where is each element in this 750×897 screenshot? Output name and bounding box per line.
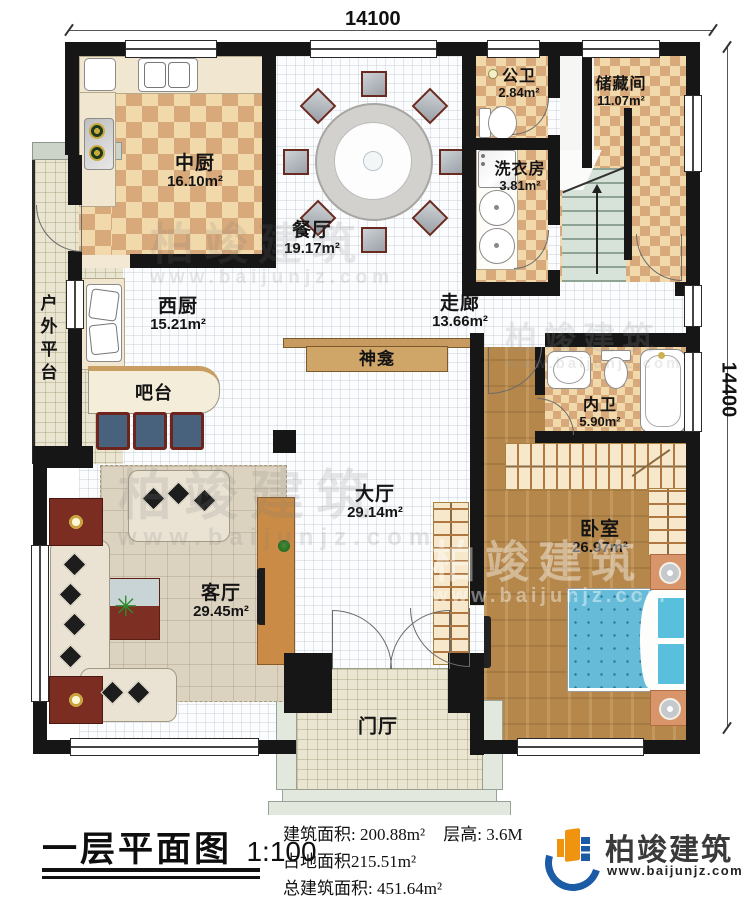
room-name: 餐厅 (284, 220, 340, 241)
porch-step (268, 801, 511, 816)
cabinet-plant (278, 540, 290, 552)
vanity-basin (553, 356, 585, 384)
nightstand (650, 690, 688, 726)
wardrobe-bedroom-top (505, 443, 688, 490)
wall-left-mid2 (68, 251, 82, 280)
room-area: 5.90m² (579, 415, 620, 430)
floor-plan-canvas: 14100 14400 户外平台 吧台 (0, 0, 750, 897)
window (70, 738, 259, 756)
bedroom-tv (484, 616, 491, 668)
room-name: 卧室 (572, 519, 628, 540)
bar-label: 吧台 (135, 383, 173, 403)
bathtub-inner (645, 355, 681, 427)
floor-height: 层高: 3.6M (443, 825, 522, 844)
table-lamp (66, 512, 86, 532)
dining-table-center (363, 151, 383, 171)
window (31, 545, 49, 702)
room-area: 3.81m² (494, 179, 545, 194)
room-area: 29.45m² (193, 604, 249, 621)
room-area: 15.21m² (150, 317, 206, 334)
bar-stool (96, 412, 130, 450)
logo-building-blue (581, 837, 590, 861)
logo-building-orange-small (557, 839, 564, 857)
window (582, 40, 660, 58)
stair-railing-wall (624, 108, 632, 260)
bar-counter: 吧台 (88, 366, 220, 414)
title-block: 一层平面图 1:100 建筑面积: 200.88m² 层高: 3.6M 占地面积… (0, 815, 750, 897)
wall-dining-wc (462, 42, 476, 296)
footprint-area: 占地面积215.51m² (283, 848, 523, 875)
stair-arrow-head (592, 184, 602, 193)
dining-chair (361, 227, 387, 253)
shrine-table: 神龛 (306, 346, 448, 372)
wall-hall-suite (470, 333, 484, 605)
window (684, 352, 702, 432)
wall-hook (488, 69, 498, 79)
window (487, 40, 540, 58)
washer-knob (481, 154, 485, 158)
wall-wc-laundry-divider (476, 138, 548, 150)
fridge (84, 58, 116, 91)
porch-column-left (284, 653, 332, 713)
wall-kitchen-bottom (130, 254, 276, 268)
dining-chair (361, 71, 387, 97)
window (66, 280, 84, 329)
company-logo: 柏竣建筑 www.baijunjz.com (543, 823, 743, 887)
right-dimension-label: 14400 (716, 362, 739, 418)
bar-name: 吧台 (135, 383, 173, 403)
room-area: 19.17m² (284, 241, 340, 258)
plan-title: 一层平面图 1:100 (42, 821, 317, 872)
room-area: 16.10m² (167, 174, 223, 191)
room-label-dining: 餐厅 19.17m² (284, 220, 340, 258)
laundry-sink-drain (494, 205, 499, 210)
wall-left-mid3 (68, 327, 82, 455)
window (125, 40, 217, 58)
room-area: 26.97m² (572, 540, 628, 557)
room-label-hall: 大厅 29.14m² (347, 484, 403, 522)
title-underline (42, 876, 260, 879)
window (310, 40, 437, 58)
logo-icon (543, 823, 599, 883)
logo-building-orange (565, 828, 580, 862)
stair-direction-arrow (596, 192, 598, 274)
sink-basin (168, 62, 190, 88)
room-name: 户外平台 (37, 294, 56, 386)
room-label-foyer: 门厅 (358, 716, 398, 737)
title-underline (42, 868, 260, 872)
room-name: 客厅 (193, 583, 249, 604)
room-area: 29.14m² (347, 505, 403, 522)
sink-basin (88, 288, 120, 322)
room-label-platform: 户外平台 (37, 294, 56, 386)
room-label-corridor: 走廊 13.66m² (432, 293, 488, 331)
table-lamp (66, 690, 86, 710)
window (684, 95, 702, 172)
wall-kitchen-dining (262, 42, 276, 268)
area-stats: 建筑面积: 200.88m² 层高: 3.6M 占地面积215.51m² 总建筑… (283, 821, 523, 897)
bathtub-faucet (658, 352, 665, 359)
stove-burner (89, 145, 105, 161)
room-area: 2.84m² (498, 86, 539, 101)
bar-stool (133, 412, 167, 450)
nightstand (650, 554, 688, 590)
room-name: 大厅 (347, 484, 403, 505)
room-area: 13.66m² (432, 314, 488, 331)
built-area: 建筑面积: 200.88m² (283, 825, 425, 844)
room-label-kitchen-cn: 中厨 16.10m² (167, 153, 223, 191)
side-table (49, 498, 103, 546)
room-name: 门厅 (358, 716, 398, 737)
bar-stool (170, 412, 204, 450)
window (684, 285, 702, 327)
bed-pillow (656, 596, 686, 640)
window (517, 738, 644, 756)
plant: ✳ (114, 593, 137, 621)
armchair (128, 470, 230, 542)
wall-left-upper (65, 42, 79, 155)
room-label-laundry: 洗衣房 3.81m² (494, 161, 545, 193)
tv-screen (257, 568, 265, 625)
room-name: 走廊 (432, 293, 488, 314)
room-label-storage: 储藏间 11.07m² (595, 76, 646, 108)
washer-knob (481, 162, 485, 166)
room-label-bath-ensuite: 内卫 5.90m² (579, 397, 620, 429)
bed-pillow (656, 642, 686, 686)
toilet-ensuite-bowl (604, 357, 628, 389)
wardrobe-bedroom-right (648, 488, 688, 556)
top-dimension-label: 14100 (345, 8, 401, 31)
room-name: 内卫 (579, 397, 620, 415)
wall-wc-stair-a (548, 42, 560, 98)
plan-title-text: 一层平面图 (42, 821, 232, 872)
room-name: 西厨 (150, 296, 206, 317)
room-label-bedroom: 卧室 26.97m² (572, 519, 628, 557)
laundry-sink-drain (494, 243, 499, 248)
side-table (49, 676, 103, 724)
wall-storage-left (582, 42, 592, 168)
dining-chair (283, 149, 309, 175)
company-url: www.baijunjz.com (607, 863, 743, 878)
nightstand-lamp (659, 698, 681, 720)
wall-left-mid (68, 155, 82, 205)
room-name: 储藏间 (595, 76, 646, 94)
room-name: 公卫 (498, 68, 539, 86)
column (273, 430, 296, 453)
room-label-wc-public: 公卫 2.84m² (498, 68, 539, 100)
shrine-name: 神龛 (359, 349, 395, 368)
stove-burner (89, 123, 105, 139)
stats-line1: 建筑面积: 200.88m² 层高: 3.6M (283, 821, 523, 848)
total-area: 总建筑面积: 451.64m² (283, 875, 523, 897)
room-name: 洗衣房 (494, 161, 545, 179)
room-area: 11.07m² (595, 94, 646, 109)
shrine-label: 神龛 (359, 349, 395, 368)
sink-basin (144, 62, 166, 88)
room-name: 中厨 (167, 153, 223, 174)
wall-suite-top (545, 333, 686, 347)
nightstand-lamp (659, 562, 681, 584)
sink-basin (89, 323, 120, 356)
room-label-living: 客厅 29.45m² (193, 583, 249, 621)
wall-wc-stair-b (548, 135, 560, 225)
room-label-kitchen-west: 西厨 15.21m² (150, 296, 206, 334)
